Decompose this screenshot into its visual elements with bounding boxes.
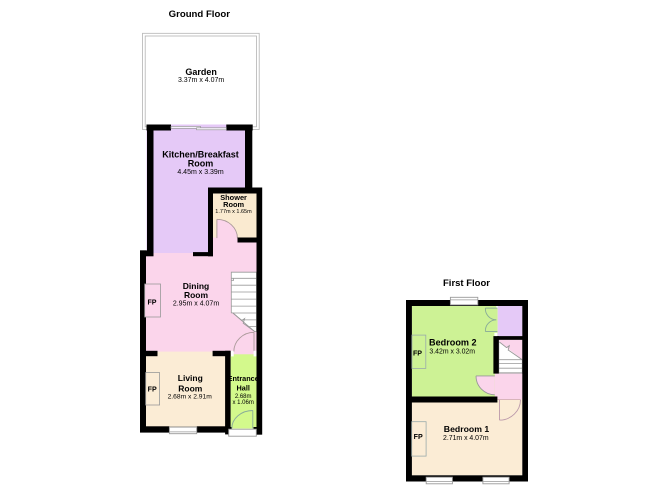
svg-text:Entrance: Entrance xyxy=(228,374,259,383)
svg-text:3.37m x 4.07m: 3.37m x 4.07m xyxy=(178,77,224,84)
svg-text:2.95m x 4.07m: 2.95m x 4.07m xyxy=(173,300,219,307)
svg-text:Room: Room xyxy=(188,158,214,168)
svg-text:Room: Room xyxy=(223,200,244,209)
svg-text:Living: Living xyxy=(178,373,203,383)
svg-text:First Floor: First Floor xyxy=(443,278,490,289)
svg-text:Hall: Hall xyxy=(237,384,250,393)
svg-text:x 1.06m: x 1.06m xyxy=(233,400,254,406)
svg-text:2.68m: 2.68m xyxy=(235,394,252,400)
svg-text:3.42m x 3.02m: 3.42m x 3.02m xyxy=(429,349,475,356)
svg-text:Bedroom 1: Bedroom 1 xyxy=(444,424,490,434)
svg-text:FP: FP xyxy=(414,433,423,441)
svg-text:1.77m x 1.65m: 1.77m x 1.65m xyxy=(215,209,252,215)
svg-text:2.68m x 2.91m: 2.68m x 2.91m xyxy=(168,394,213,401)
svg-text:2.71m x 4.07m: 2.71m x 4.07m xyxy=(443,435,489,442)
svg-text:Room: Room xyxy=(184,290,209,300)
svg-text:FP: FP xyxy=(147,298,156,306)
svg-text:FP: FP xyxy=(413,350,422,358)
svg-text:Garden: Garden xyxy=(185,67,217,77)
svg-text:Bedroom 2: Bedroom 2 xyxy=(429,337,477,347)
svg-text:Ground Floor: Ground Floor xyxy=(169,9,231,20)
svg-text:4.45m x 3.39m: 4.45m x 3.39m xyxy=(177,169,223,176)
svg-text:Room: Room xyxy=(178,383,203,393)
svg-text:FP: FP xyxy=(148,385,157,393)
